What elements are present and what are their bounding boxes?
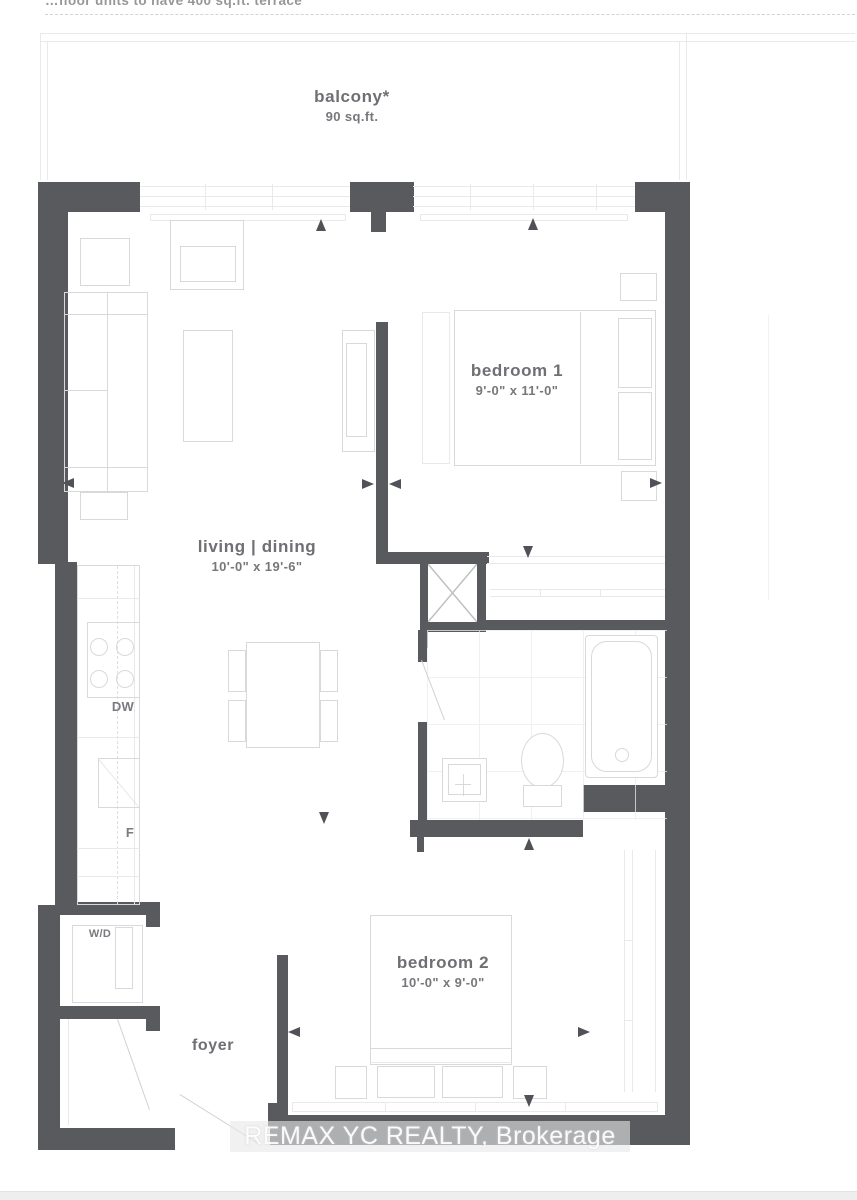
wall-tab xyxy=(146,1006,160,1031)
bedroom2-title: bedroom 2 xyxy=(358,952,528,973)
toilet-tank xyxy=(523,785,562,807)
kitchen-upper-cabinet-line xyxy=(117,566,118,904)
fridge-label: F xyxy=(118,825,142,840)
window-mullion xyxy=(596,184,597,210)
wall-tab xyxy=(371,212,386,232)
cabinet-line xyxy=(77,737,140,738)
wall-closet xyxy=(420,564,428,624)
brokerage-watermark: REMAX YC REALTY, Brokerage xyxy=(230,1121,630,1152)
sink-faucet-cross xyxy=(463,774,464,796)
window-mullion xyxy=(205,184,206,210)
wall-bedroom1-living xyxy=(376,322,388,558)
wall-left-lower xyxy=(55,562,77,905)
dining-chair xyxy=(228,650,246,692)
pillow xyxy=(618,392,652,460)
tv xyxy=(346,343,367,437)
wall-bedroom2-left xyxy=(277,955,288,1115)
wall xyxy=(350,182,414,212)
cabinet-line xyxy=(77,876,140,877)
wall-bottom-left xyxy=(38,1128,175,1150)
toilet-bowl xyxy=(521,733,564,788)
pillow xyxy=(618,318,652,388)
sofa-armrest-line xyxy=(64,467,148,468)
arrow-icon xyxy=(288,1027,300,1037)
window-mullion xyxy=(533,184,534,210)
closet-slider-line xyxy=(624,850,625,1092)
window-mullion xyxy=(272,184,273,210)
window xyxy=(140,206,350,207)
bedroom2-dims: 10'-0" x 9'-0" xyxy=(358,975,528,991)
wall-tab xyxy=(146,902,160,927)
balcony-outline xyxy=(686,33,687,180)
wall-bathroom-left xyxy=(418,630,427,662)
closet-tick xyxy=(624,1020,632,1021)
dining-table xyxy=(246,642,320,748)
bedroom2-label: bedroom 2 10'-0" x 9'-0" xyxy=(358,952,528,992)
arrow-icon xyxy=(524,1095,534,1107)
bottom-edge-strip xyxy=(0,1191,857,1200)
wall-left-bottom xyxy=(38,905,60,1150)
sofa-cushion-line xyxy=(64,390,107,391)
bedroom1-title: bedroom 1 xyxy=(432,360,602,381)
pillow xyxy=(377,1066,435,1098)
stove-burner xyxy=(90,638,108,656)
ottoman xyxy=(80,492,128,520)
foyer-title: foyer xyxy=(178,1036,248,1056)
wall-closet xyxy=(477,564,486,624)
nightstand xyxy=(335,1066,367,1099)
bathroom-sink-basin xyxy=(448,764,481,795)
closet-slider-line xyxy=(487,556,665,557)
shaft-closet-x xyxy=(428,564,477,622)
closet-slider-line xyxy=(490,596,665,597)
wall-bathroom-left xyxy=(418,722,427,833)
window xyxy=(140,196,350,197)
balcony-outline xyxy=(40,41,855,42)
window xyxy=(413,206,635,207)
pillow xyxy=(442,1066,503,1098)
arrow-icon xyxy=(523,546,533,558)
living-dining-title: living | dining xyxy=(172,536,342,557)
dining-chair xyxy=(320,700,338,742)
kitchen-counter-line xyxy=(134,566,135,904)
sink-faucet-cross xyxy=(455,784,471,785)
stove-burner xyxy=(90,670,108,688)
bedroom1-dims: 9'-0" x 11'-0" xyxy=(432,383,602,399)
floor-plan-canvas: { "document": { "type": "condo floor pla… xyxy=(0,0,857,1200)
bed-line xyxy=(370,1062,512,1063)
arrow-icon xyxy=(62,478,74,488)
wall-bathroom-bottom xyxy=(410,820,583,837)
bed-fold-line xyxy=(370,1048,512,1049)
arrow-icon xyxy=(524,838,534,850)
closet-tick xyxy=(624,940,632,941)
arrow-icon xyxy=(319,812,329,824)
sofa-armrest-line xyxy=(64,314,148,315)
stove-burner xyxy=(116,638,134,656)
arrow-icon xyxy=(389,479,401,489)
arrow-icon xyxy=(528,218,538,230)
dishwasher-label: DW xyxy=(103,699,143,714)
adjacent-outline xyxy=(768,315,769,600)
washer-dryer-label: W/D xyxy=(80,928,120,940)
balcony-outline xyxy=(679,41,680,180)
dining-chair xyxy=(320,650,338,692)
balcony-label: balcony* 90 sq.ft. xyxy=(262,86,442,126)
arrow-icon xyxy=(316,219,326,231)
closet-tick xyxy=(600,589,601,597)
window xyxy=(413,186,635,187)
sofa xyxy=(64,292,148,492)
top-note-text: …floor units to have 400 sq.ft. terrace xyxy=(45,0,475,8)
window-sill xyxy=(420,214,628,221)
entry-closet-door xyxy=(117,1019,150,1110)
sofa-back-line xyxy=(107,292,108,492)
wall-bathroom-top xyxy=(483,620,667,630)
window xyxy=(413,196,635,197)
stove-burner xyxy=(116,670,134,688)
foyer-label: foyer xyxy=(178,1036,248,1056)
window xyxy=(140,186,350,187)
arrow-icon xyxy=(362,479,374,489)
balcony-outline xyxy=(40,33,41,180)
window-mullion xyxy=(475,1102,476,1112)
entry-closet-line xyxy=(68,1019,69,1125)
living-dining-dims: 10'-0" x 19'-6" xyxy=(172,559,342,575)
bedroom1-label: bedroom 1 9'-0" x 11'-0" xyxy=(432,360,602,400)
kitchen-counter xyxy=(77,565,140,905)
wall-right xyxy=(665,212,690,1145)
arrow-icon xyxy=(578,1027,590,1037)
closet-slider-line xyxy=(632,850,633,1092)
closet-slider-line xyxy=(490,589,665,590)
nightstand xyxy=(620,273,657,301)
window-mullion xyxy=(565,1102,566,1112)
living-dining-label: living | dining 10'-0" x 19'-6" xyxy=(172,536,342,576)
wall-wd-bottom xyxy=(55,1006,160,1019)
window-mullion xyxy=(385,1102,386,1112)
top-note-cutoff: …floor units to have 400 sq.ft. terrace xyxy=(45,0,475,9)
terrace-dashed-line xyxy=(45,14,855,15)
balcony-outline xyxy=(40,33,855,34)
balcony-outline xyxy=(47,41,48,180)
media-unit-inner xyxy=(180,246,236,282)
closet-slider-line xyxy=(487,563,665,564)
armchair xyxy=(80,238,130,286)
arrow-icon xyxy=(650,478,662,488)
balcony-area: 90 sq.ft. xyxy=(262,109,442,125)
cabinet-line xyxy=(77,848,140,849)
closet-tick xyxy=(540,589,541,597)
wall xyxy=(376,552,489,564)
closet-slider-line xyxy=(655,850,656,1092)
cabinet-line xyxy=(77,598,140,599)
bathtub-drain xyxy=(615,748,629,762)
coffee-table xyxy=(183,330,233,442)
window-mullion xyxy=(470,184,471,210)
dining-chair xyxy=(228,700,246,742)
wall xyxy=(635,182,690,212)
wall-tab xyxy=(417,837,424,852)
balcony-title: balcony* xyxy=(262,86,442,107)
